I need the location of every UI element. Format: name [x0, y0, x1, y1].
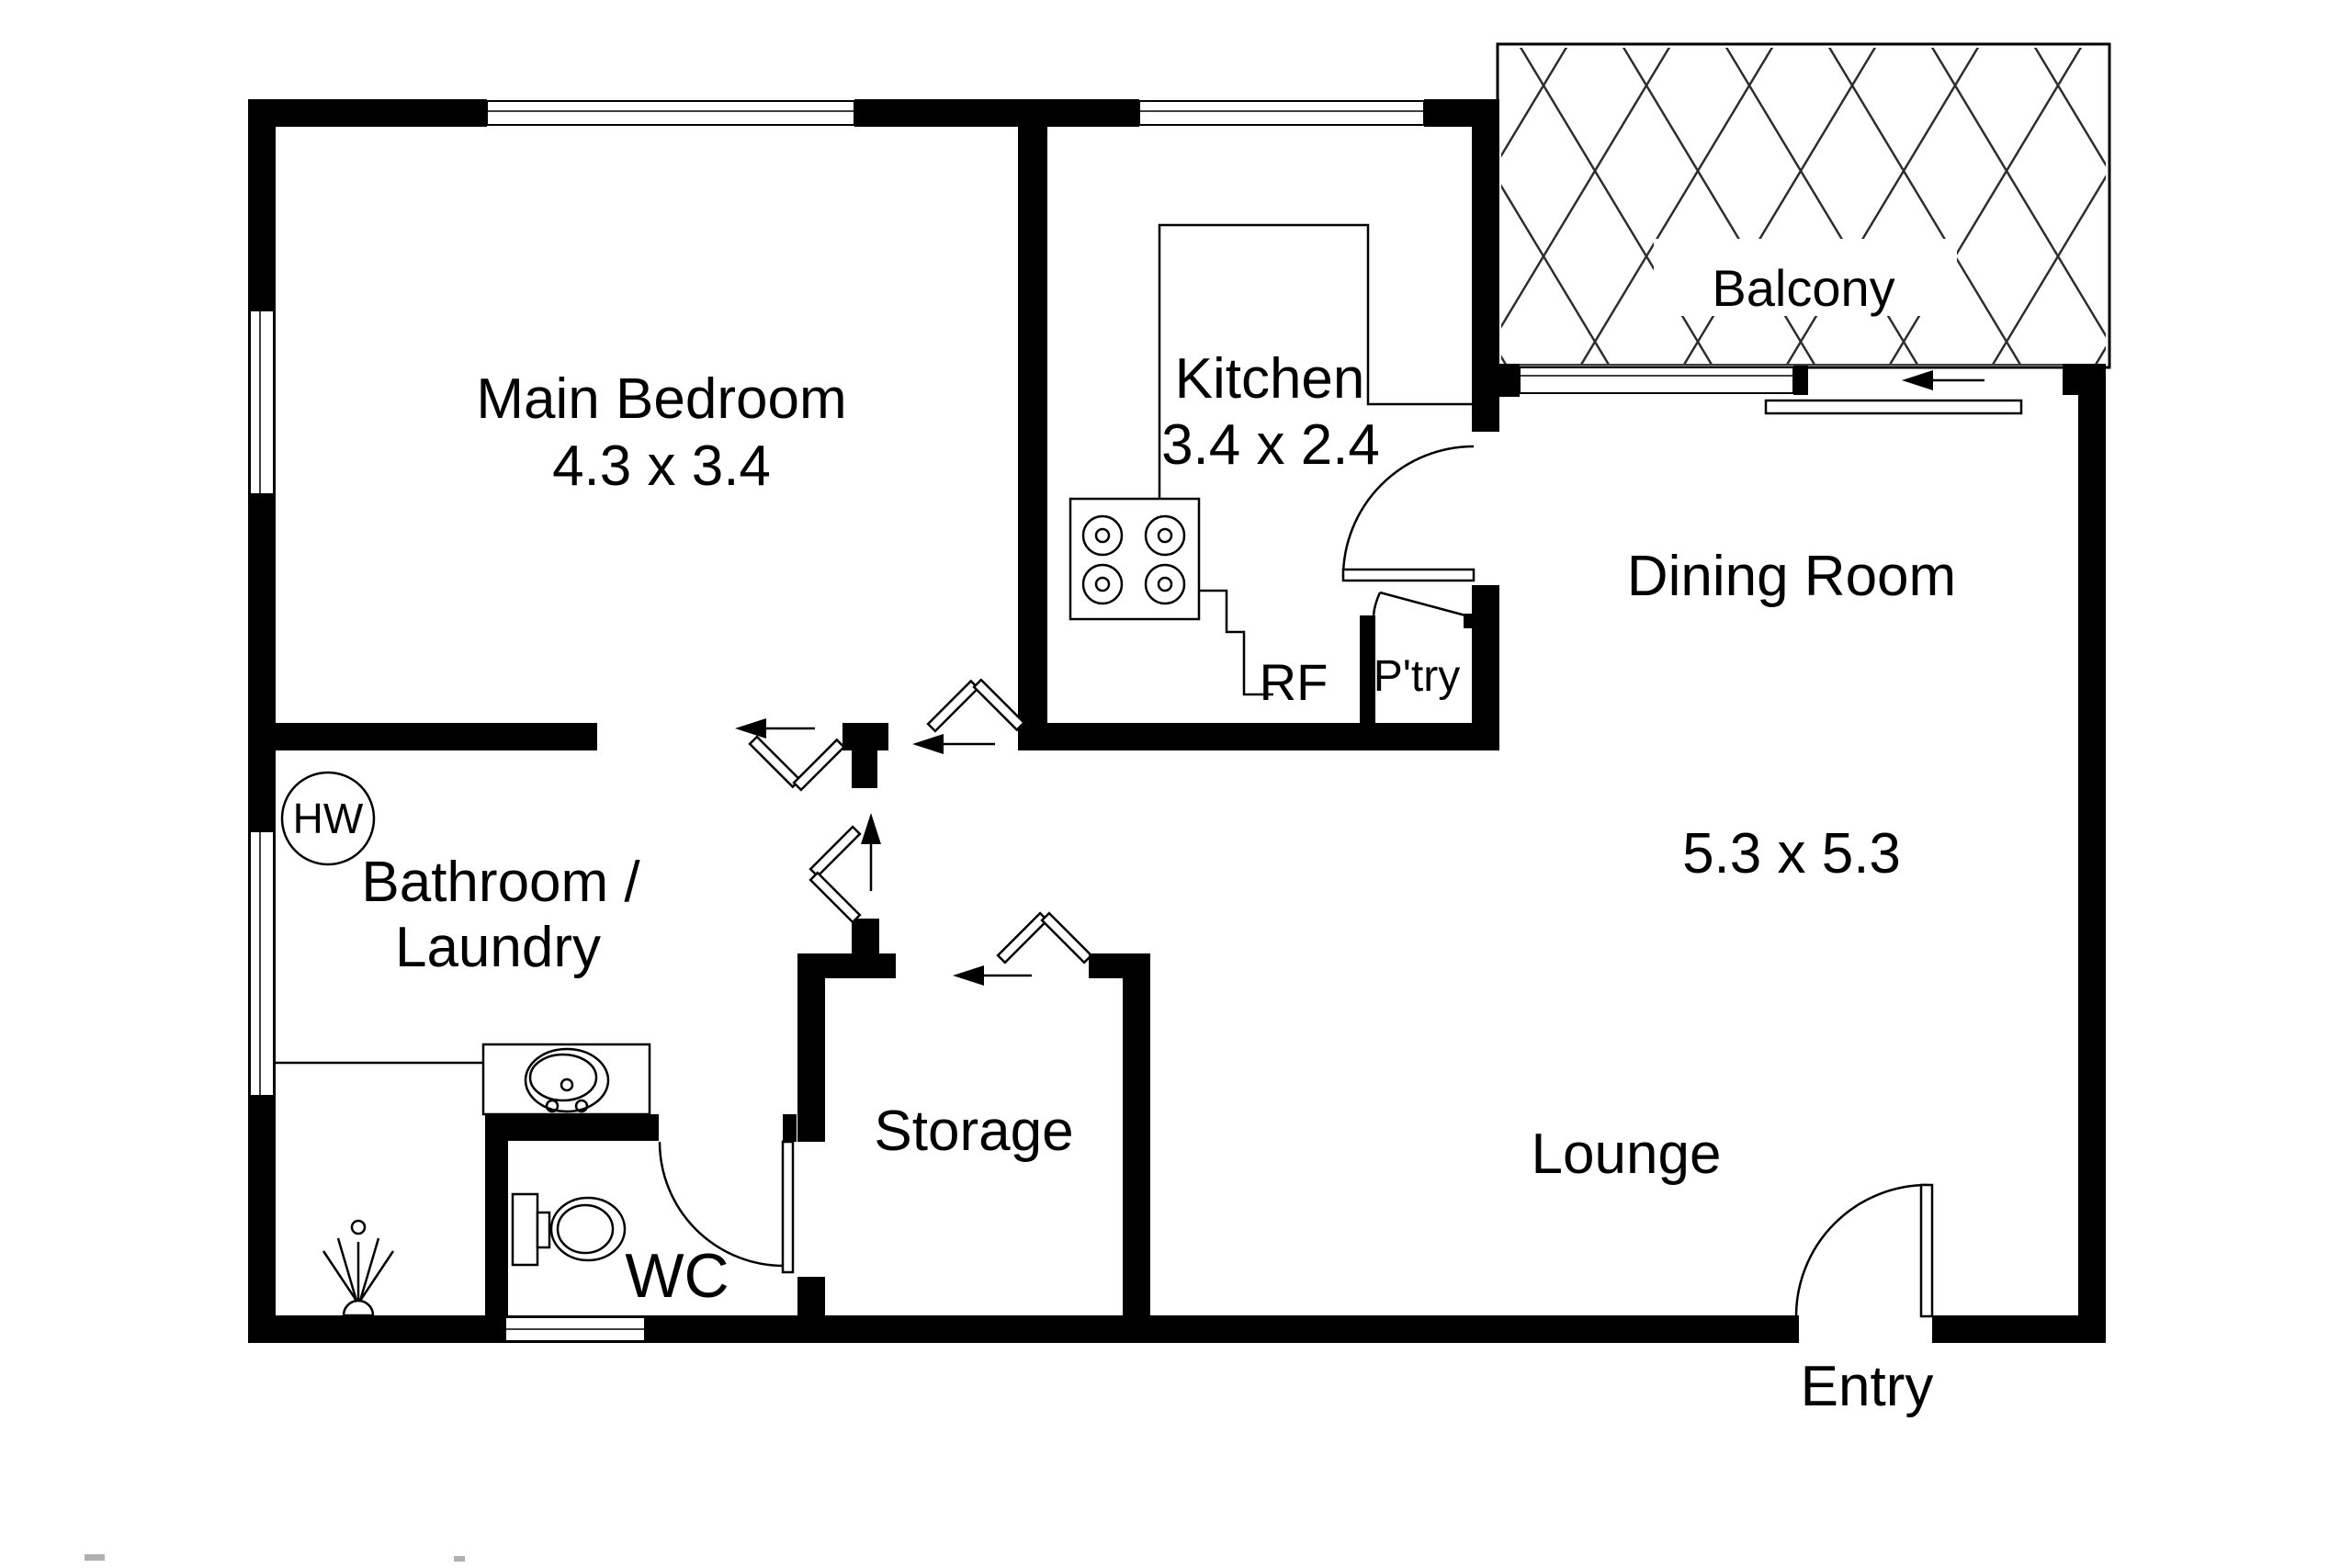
stove-icon [1070, 499, 1199, 619]
kitchen-label: Kitchen [1175, 347, 1365, 411]
kitchen-bottom-wall [1018, 723, 1499, 750]
dining-room-label: Dining Room [1627, 545, 1956, 608]
window-left-bathroom [250, 831, 274, 1096]
window-top-kitchen [1139, 101, 1424, 125]
pantry-label: P'try [1374, 652, 1461, 701]
balcony-area: Balcony [1498, 44, 2109, 367]
windows [250, 101, 1424, 1341]
bedroom-kitchen-wall [1018, 127, 1047, 750]
entry-door [1796, 1185, 1932, 1316]
top-wall-seg1 [248, 99, 487, 127]
top-wall-seg2 [854, 99, 1139, 127]
floorplan-page: Balcony [0, 0, 2352, 1568]
storage-label: Storage [874, 1100, 1073, 1163]
fridge-label: RF [1260, 653, 1329, 711]
bathroom-bifold-door [810, 827, 860, 922]
dining-room-dim: 5.3 x 5.3 [1682, 822, 1901, 886]
kitchen-right-wall-upper [1472, 127, 1499, 432]
main-bedroom-dim: 4.3 x 3.4 [552, 434, 771, 498]
bedroom-bifold-door [750, 737, 843, 790]
cropped-artifact-1 [85, 1554, 105, 1561]
bedroom-entry-arrow [735, 718, 815, 739]
pantry-door-arc [1374, 592, 1380, 615]
wc-sliding-door-panel [783, 1142, 793, 1272]
balcony-sliding-door [1496, 364, 2106, 413]
kitchen-right-wall-lower [1472, 585, 1499, 750]
window-dining-fixed [1520, 367, 1793, 393]
storage-right-wall [1123, 953, 1150, 1315]
bottom-wall-seg1 [248, 1315, 1799, 1343]
hall-stub-lower [852, 919, 879, 957]
kitchen-dim: 3.4 x 2.4 [1161, 413, 1380, 477]
lounge-label: Lounge [1532, 1122, 1722, 1186]
kitchen-door-leaf [1343, 570, 1474, 581]
hall-stub-leg [852, 750, 877, 788]
shower-icon [323, 1221, 393, 1315]
interior-walls [274, 127, 1499, 957]
kitchen-bifold-door [928, 680, 1023, 731]
wc-label: WC [625, 1241, 729, 1311]
window-bottom-wc [505, 1317, 645, 1341]
bathroom-label-line1: Bathroom / [361, 851, 640, 914]
storage-entry-arrow [953, 965, 1032, 986]
toilet-icon [513, 1194, 625, 1265]
storage-bifold-door [998, 913, 1091, 963]
wc-left-wall [485, 1141, 508, 1315]
kitchen-entry-arrow [912, 734, 995, 754]
slider-stub [1793, 366, 1808, 395]
storage-left-wall-upper [797, 953, 825, 1142]
right-wall [2078, 389, 2106, 1343]
wc-top-wall [485, 1114, 659, 1141]
wc-lobby-stub [783, 1114, 797, 1142]
window-left-bedroom [250, 310, 274, 494]
pantry-door-leaf [1380, 592, 1465, 615]
cropped-artifact-2 [454, 1556, 465, 1562]
hot-water-label: HW [293, 795, 364, 842]
vanity-sink-icon [483, 1044, 650, 1114]
main-bedroom-label: Main Bedroom [476, 367, 846, 431]
hall-stub-top [842, 723, 888, 750]
balcony-label: Balcony [1712, 259, 1894, 317]
sliding-door-panel [1766, 400, 2021, 413]
top-wall-seg3 [1424, 99, 1499, 127]
entry-label: Entry [1801, 1355, 1934, 1418]
storage-left-wall-lower [797, 1277, 825, 1315]
hot-water-icon: HW [282, 773, 374, 864]
left-wall [248, 99, 276, 1343]
balcony-entry-arrow [1902, 370, 1984, 390]
bathroom-entry-arrow [861, 813, 881, 891]
slider-post-right [2063, 364, 2106, 395]
bathroom-label-line2: Laundry [395, 916, 601, 979]
entry-door-leaf [1921, 1185, 1932, 1316]
bedroom-bottom-wall [274, 723, 597, 750]
window-top-bedroom [487, 101, 854, 125]
floorplan-drawing: Balcony [0, 0, 2352, 1568]
